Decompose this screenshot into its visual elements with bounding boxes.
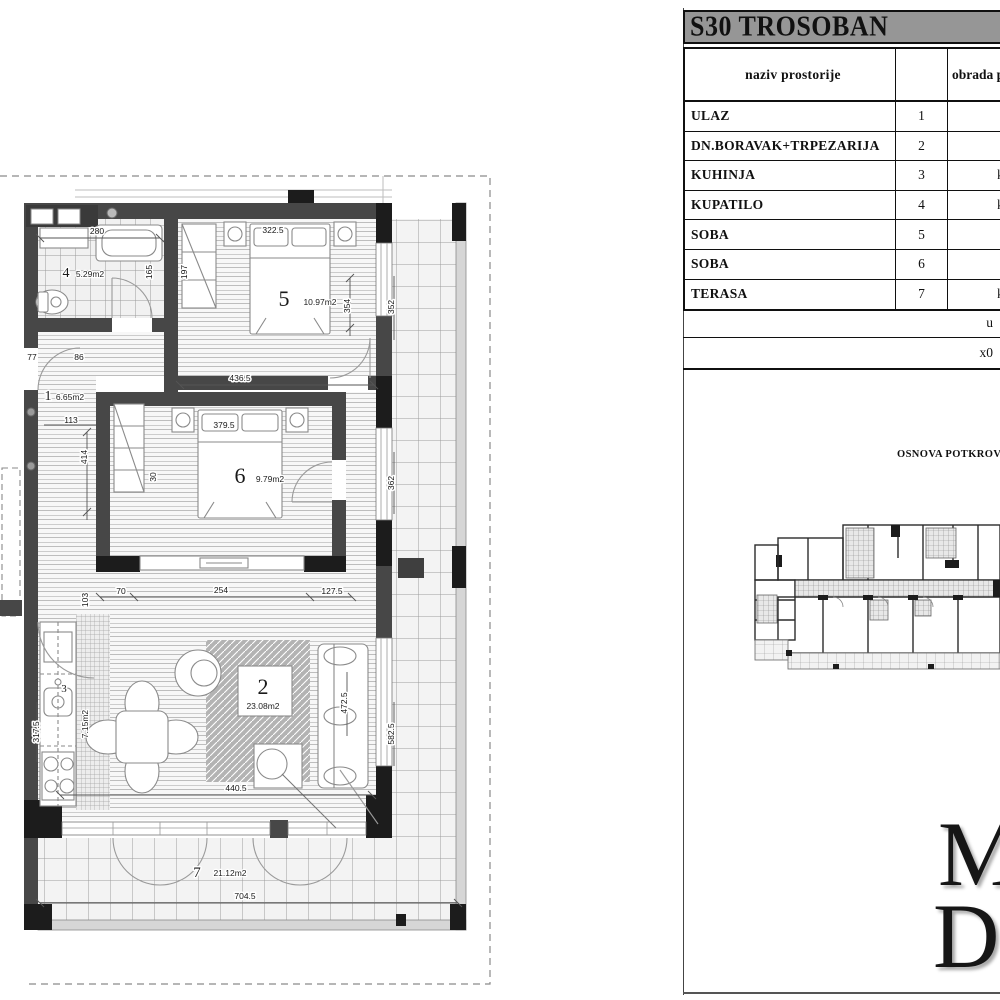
room-area-label: 10.97m2 <box>303 297 336 307</box>
room-number: 1 <box>895 102 947 131</box>
table-row: SOBA 6 park <box>685 250 1000 280</box>
room-number: 7 <box>895 280 947 310</box>
room-table: naziv prostorije obrada p ULAZ 1 park DN… <box>683 47 1000 311</box>
room-number-label: 3 <box>61 683 67 695</box>
table-total-row: u <box>683 309 1000 338</box>
wardrobe-room6 <box>114 404 144 492</box>
table-row: SOBA 5 park <box>685 220 1000 250</box>
table-scale-row: x0 <box>683 339 1000 370</box>
dimension-label: 379.5 <box>213 420 235 430</box>
room-area-label: 6.65m2 <box>56 392 85 402</box>
room-number-label: 5 <box>279 286 290 311</box>
room-name: SOBA <box>685 220 895 249</box>
dimension-label: 440.5 <box>225 783 247 793</box>
col-header-finish: obrada p <box>947 49 1000 100</box>
dimension-label: 165 <box>144 265 154 279</box>
room-number: 5 <box>895 220 947 249</box>
tv-cabinet <box>140 556 304 570</box>
room-number: 2 <box>895 132 947 161</box>
key-plan <box>683 500 1000 710</box>
dimension-label: 77 <box>27 352 37 362</box>
window <box>376 638 392 766</box>
room-number-label: 4 <box>63 266 70 281</box>
page-title: S30 TROSOBAN <box>690 11 888 43</box>
dimension-label: 582.5 <box>386 723 396 745</box>
room-finish: ker.plo <box>947 280 1000 310</box>
dimension-label: 86 <box>74 352 84 362</box>
terrace-bottom-floor <box>38 838 458 922</box>
col-header-name: naziv prostorije <box>685 49 895 100</box>
dimension-label: 322.5 <box>262 225 284 235</box>
window <box>376 428 392 520</box>
table-row: ULAZ 1 park <box>685 102 1000 132</box>
bathtub <box>96 225 162 261</box>
room-area-label: 21.12m2 <box>213 868 246 878</box>
dimension-label: 472.5 <box>339 692 349 714</box>
lamp <box>290 413 304 427</box>
hall-floor <box>38 332 164 376</box>
dimension-label: 127.5 <box>321 586 343 596</box>
dimension-label: 352 <box>386 300 396 314</box>
room-number-label: 6 <box>235 463 246 488</box>
dimension-label: 317.5 <box>31 721 41 743</box>
dimension-label: 30 <box>148 472 158 482</box>
table-header: naziv prostorije obrada p <box>685 49 1000 102</box>
floor-plan: 280322.5165197354352436.57786113414379.5… <box>0 0 690 1000</box>
bed-room5 <box>250 224 330 334</box>
room-finish: park <box>947 250 1000 279</box>
table-row: DN.BORAVAK+TRPEZARIJA 2 park <box>685 132 1000 162</box>
room-number: 3 <box>895 161 947 190</box>
room-number-label: 7 <box>193 865 201 881</box>
lamp <box>338 227 352 241</box>
dimension-label: 436.5 <box>229 373 251 383</box>
room-area-label: 23.08m2 <box>246 701 279 711</box>
dimension-label: 414 <box>79 450 89 464</box>
dimension-label: 113 <box>64 415 78 425</box>
room-finish: park <box>947 220 1000 249</box>
room-name: SOBA <box>685 250 895 279</box>
col-header-num <box>895 49 947 100</box>
terrace-door-glazing <box>62 822 366 835</box>
armchair-round <box>175 650 221 696</box>
room-name: KUHINJA <box>685 161 895 190</box>
page: 280322.5165197354352436.57786113414379.5… <box>0 0 1000 1000</box>
room-finish: park <box>947 132 1000 161</box>
lamp <box>176 413 190 427</box>
dimension-label: 254 <box>214 585 228 595</box>
ac-unit <box>398 558 424 578</box>
room-number: 4 <box>895 191 947 220</box>
room-area-label: 5.29m2 <box>76 269 105 279</box>
dimension-label: 280 <box>90 226 104 236</box>
passage-floor <box>346 392 376 570</box>
dimension-label: 362 <box>386 476 396 490</box>
room-finish: ker.plo <box>947 161 1000 190</box>
room-name: TERASA <box>685 280 895 310</box>
scale-label: x0 <box>980 345 994 361</box>
title-bar: S30 TROSOBAN <box>683 10 1000 44</box>
table-row: KUPATILO 4 ker.plo <box>685 191 1000 221</box>
room-number-label: 2 <box>258 674 269 699</box>
room-area-label: 9.79m2 <box>256 474 285 484</box>
dimension-label: 704.5 <box>234 891 256 901</box>
keyplan-title: OSNOVA POTKROV <box>897 449 1000 460</box>
sofa <box>318 644 368 788</box>
toilet <box>36 290 68 314</box>
title-block-panel: S30 TROSOBAN naziv prostorije obrada p U… <box>683 0 1000 1000</box>
room-name: ULAZ <box>685 102 895 131</box>
room-area-label: 7.15m2 <box>80 710 90 739</box>
room-number: 6 <box>895 250 947 279</box>
room-finish: ker.plo <box>947 191 1000 220</box>
table-row: KUHINJA 3 ker.plo <box>685 161 1000 191</box>
room-name: KUPATILO <box>685 191 895 220</box>
logo-letter-d: D <box>933 890 999 982</box>
room-name: DN.BORAVAK+TRPEZARIJA <box>685 132 895 161</box>
dimension-label: 103 <box>80 593 90 607</box>
dimension-label: 354 <box>342 299 352 313</box>
lamp <box>228 227 242 241</box>
room-number-label: 1 <box>45 389 52 404</box>
dimension-label: 197 <box>179 265 189 279</box>
room-finish: park <box>947 102 1000 131</box>
chimney-block <box>288 190 314 203</box>
panel-bottom-border <box>683 992 1000 994</box>
dimension-label: 70 <box>116 586 126 596</box>
total-label: u <box>986 315 993 331</box>
table-row: TERASA 7 ker.plo <box>685 280 1000 310</box>
